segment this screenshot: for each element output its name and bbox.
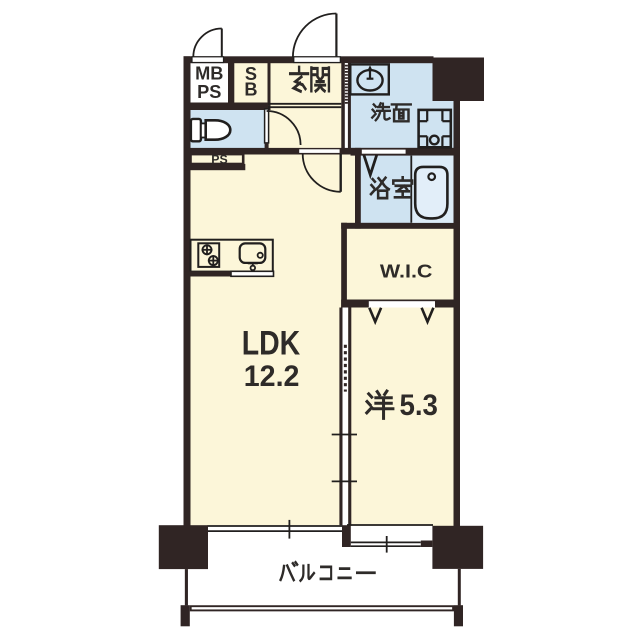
svg-text:MB: MB — [195, 63, 223, 83]
svg-text:12.2: 12.2 — [244, 360, 300, 393]
svg-text:5.3: 5.3 — [399, 389, 438, 422]
svg-text:LDK: LDK — [242, 325, 301, 363]
svg-text:B: B — [244, 79, 257, 99]
svg-text:PS: PS — [211, 152, 227, 166]
svg-text:PS: PS — [197, 82, 221, 102]
svg-text:W.I.C: W.I.C — [380, 261, 433, 282]
